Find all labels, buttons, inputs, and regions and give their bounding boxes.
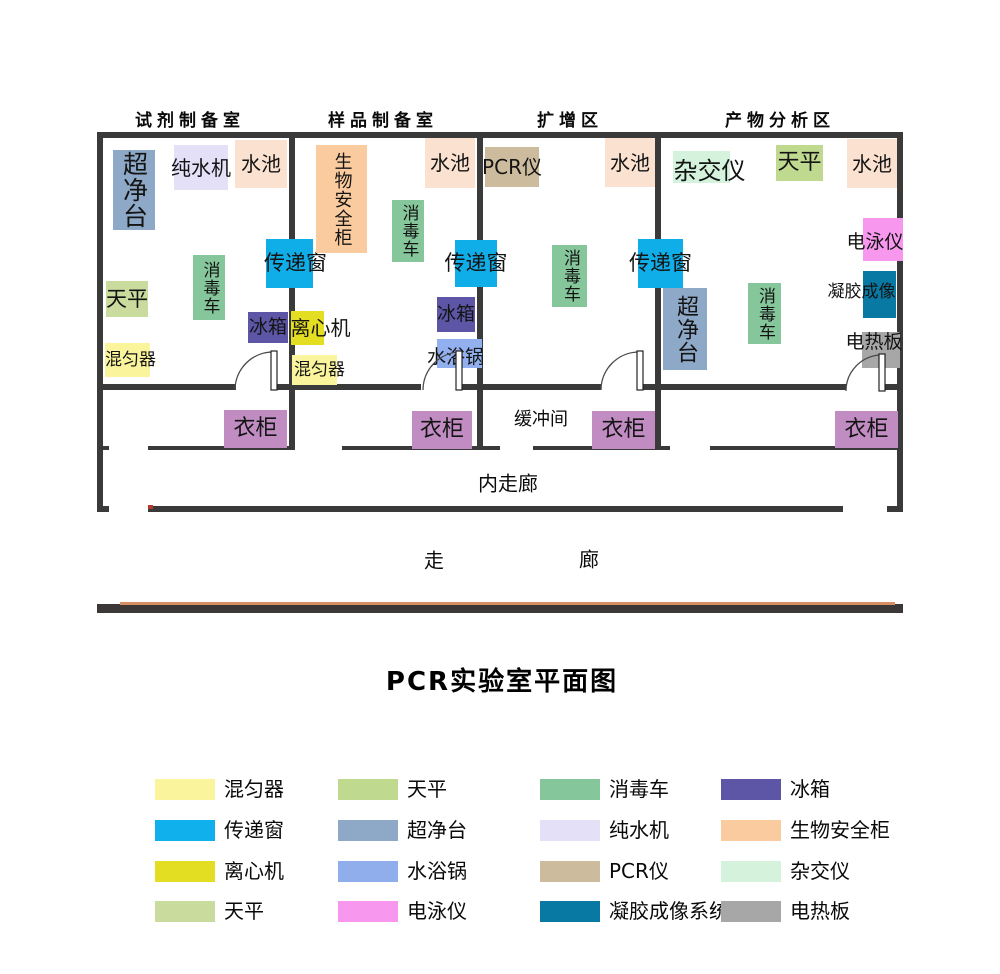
legend-label-balance-b: 天平 [224,901,264,922]
legend-swatch-disinfect-cart [540,779,600,800]
legend-swatch-hot-plate [721,901,781,922]
legend-label-hybridizer: 杂交仪 [790,861,850,882]
legend-label-mixer: 混匀器 [224,779,284,800]
pcr-lab-floorplan-page: 超净台纯水机水池消毒车传递窗天平冰箱混匀器生物安全柜水池消毒车传递窗冰箱水浴锅离… [0,0,1000,974]
legend-label-clean-bench: 超净台 [407,820,467,841]
legend-label-disinfect-cart: 消毒车 [609,779,669,800]
legend-label-hot-plate: 电热板 [790,901,850,922]
legend-swatch-transfer-window [155,820,215,841]
legend-label-biosafety-cabinet: 生物安全柜 [790,820,890,841]
legend-swatch-clean-bench [338,820,398,841]
legend-label-pcr-machine: PCR仪 [609,861,669,882]
legend-swatch-balance-a [338,779,398,800]
legend-swatch-fridge [721,779,781,800]
legend-swatch-water-bath [338,861,398,882]
legend-swatch-hybridizer [721,861,781,882]
legend-swatch-electrophoresis [338,901,398,922]
legend-swatch-gel-imaging-system [540,901,600,922]
legend-swatch-centrifuge [155,861,215,882]
legend-label-fridge: 冰箱 [790,779,830,800]
legend-label-water-purifier: 纯水机 [609,820,669,841]
legend-label-transfer-window: 传递窗 [224,820,284,841]
legend-swatch-biosafety-cabinet [721,820,781,841]
legend-swatch-mixer [155,779,215,800]
legend-label-water-bath: 水浴锅 [407,861,467,882]
legend-label-balance-a: 天平 [407,779,447,800]
legend-swatch-water-purifier [540,820,600,841]
legend-swatch-balance-b [155,901,215,922]
legend: 混匀器天平消毒车冰箱传递窗超净台纯水机生物安全柜离心机水浴锅PCR仪杂交仪天平电… [0,0,1000,974]
legend-label-electrophoresis: 电泳仪 [407,901,467,922]
legend-label-centrifuge: 离心机 [224,861,284,882]
legend-label-gel-imaging-system: 凝胶成像系统 [609,901,729,922]
legend-swatch-pcr-machine [540,861,600,882]
